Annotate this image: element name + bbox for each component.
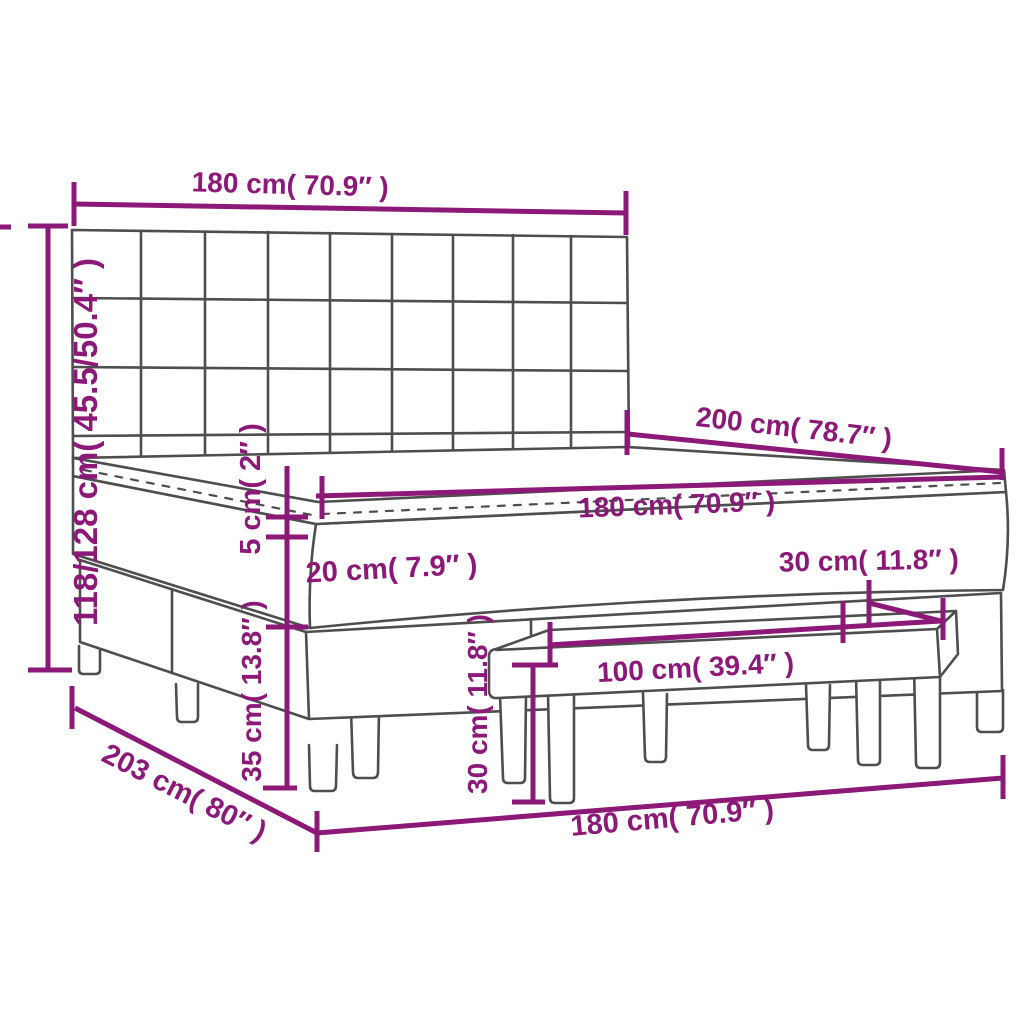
dim-label-headboard-width: 180 cm( 70.9″ ) <box>191 166 389 202</box>
bed-dimension-diagram: 180 cm( 70.9″ ) 118/128 cm( 45.5/50.4″ )… <box>0 0 1024 1024</box>
bench-leg <box>548 693 574 803</box>
furniture-drawing <box>72 230 1008 803</box>
dim-overall-height <box>28 226 72 670</box>
headboard-outline <box>72 230 629 461</box>
bench-leg <box>856 676 880 765</box>
bed-leg <box>79 646 100 674</box>
bench-leg <box>643 693 667 762</box>
bed-leg <box>309 745 337 791</box>
dim-label-base-height: 35 cm( 13.8″ ) <box>236 600 267 782</box>
bed-leg <box>977 690 1003 732</box>
dim-label-bench-height: 30 cm( 11.8″ ) <box>462 614 493 794</box>
dim-label-overall-height: 118/128 cm( 45.5/50.4″ ) <box>67 258 104 626</box>
bed-leg <box>176 684 198 722</box>
bench-leg <box>500 695 526 783</box>
bed-leg <box>351 710 379 778</box>
dim-label-topper-height: 5 cm( 2″ ) <box>235 423 267 555</box>
headboard <box>72 230 629 461</box>
bench-leg <box>914 666 940 768</box>
dim-label-bench-depth: 30 cm( 11.8″ ) <box>779 543 959 577</box>
diagram-canvas: 180 cm( 70.9″ ) 118/128 cm( 45.5/50.4″ )… <box>0 0 1024 1024</box>
dim-label-bed-width: 180 cm( 70.9″ ) <box>569 793 775 843</box>
bench-leg <box>806 684 830 750</box>
